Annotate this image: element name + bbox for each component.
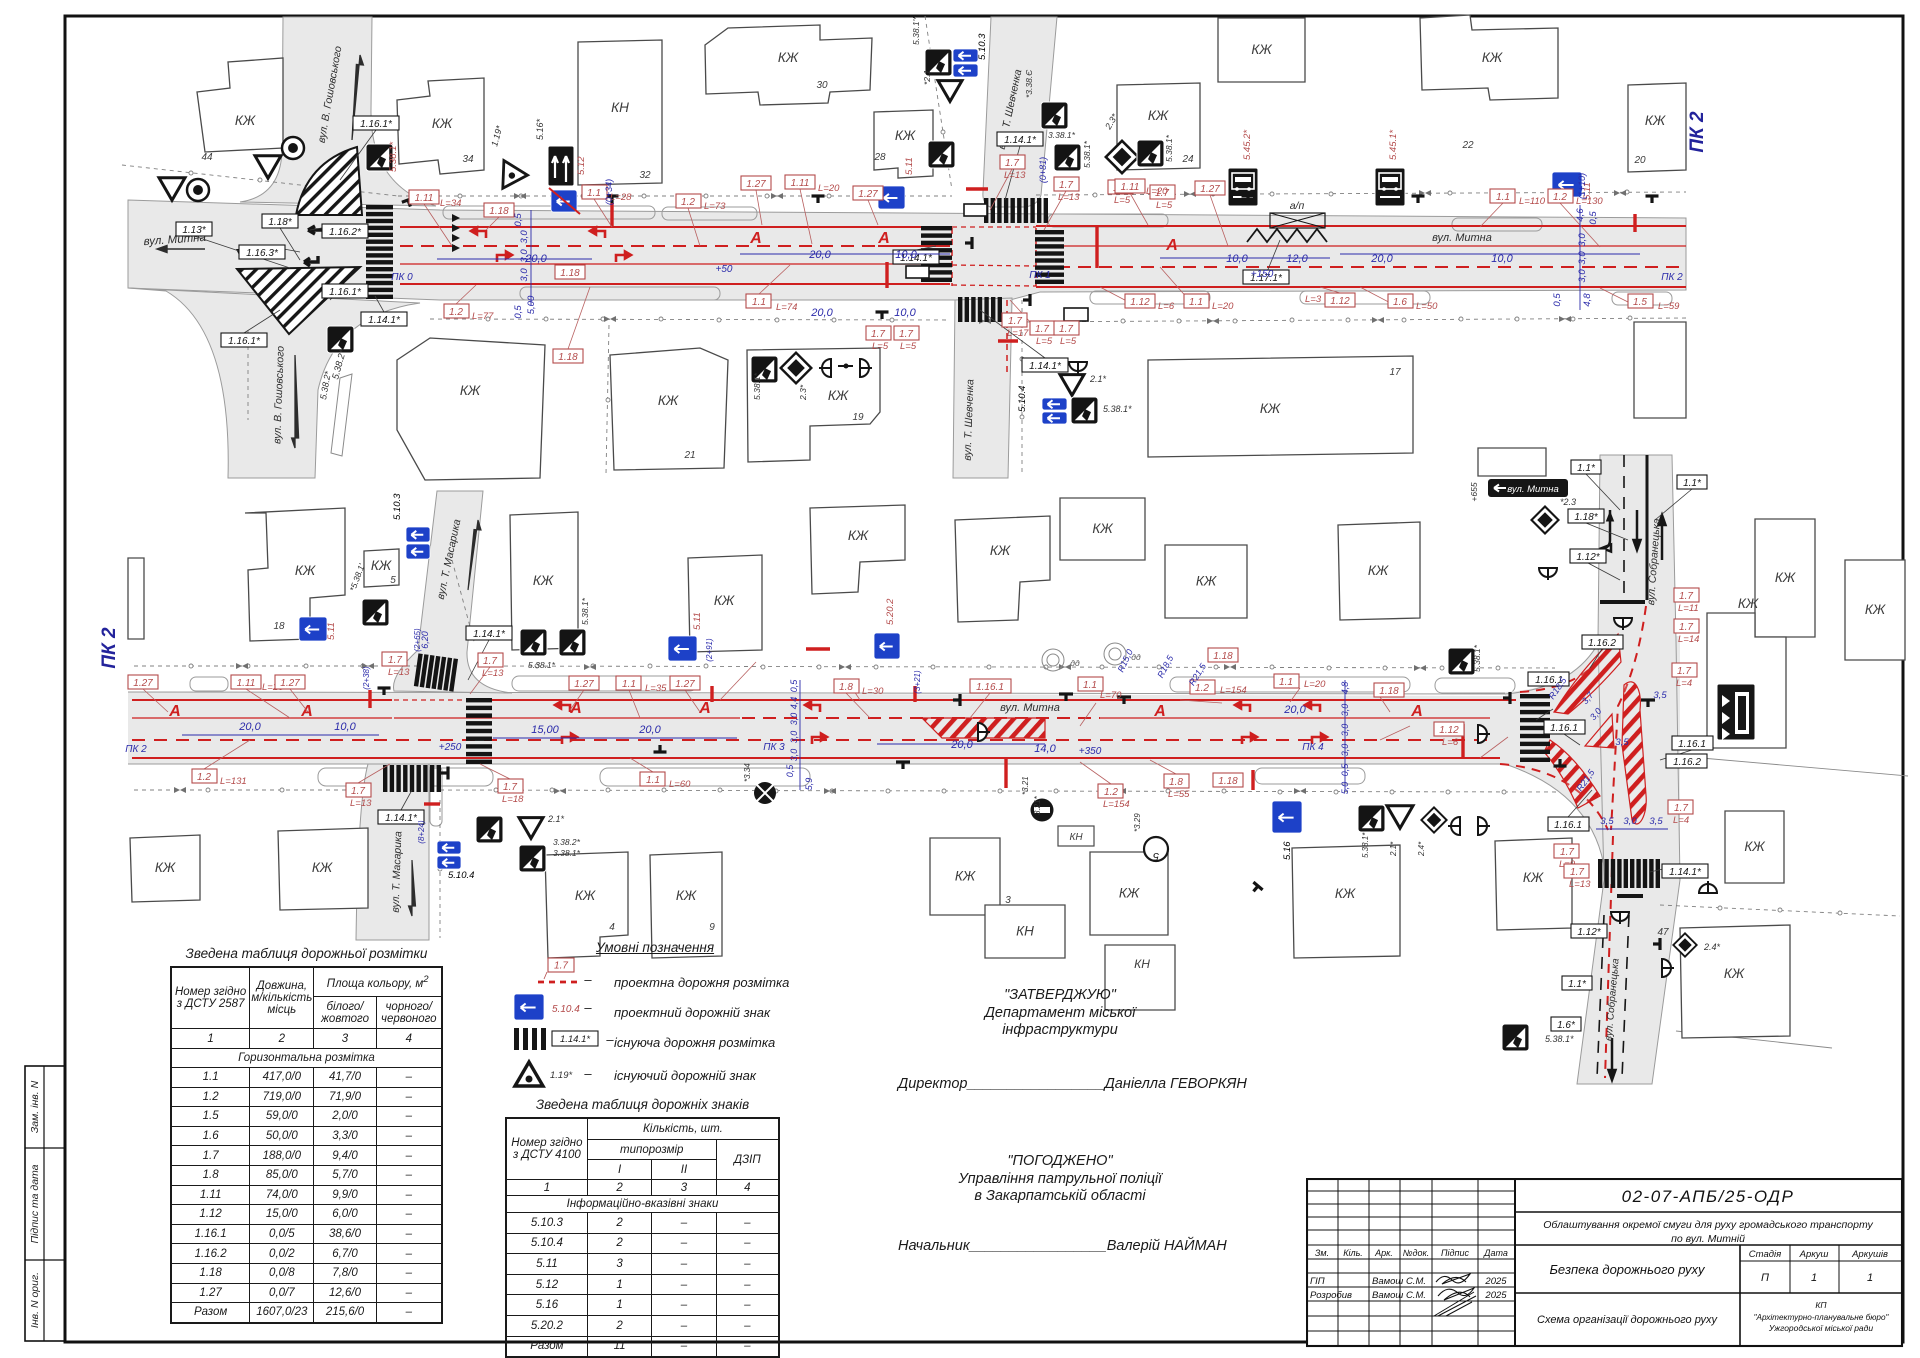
svg-text:1.18: 1.18 (1379, 686, 1399, 697)
svg-text:КЖ: КЖ (955, 869, 977, 884)
svg-text:КЖ: КЖ (1092, 521, 1114, 536)
svg-text:1.7: 1.7 (899, 329, 913, 340)
svg-text:КЖ: КЖ (658, 393, 680, 408)
svg-text:ПК 2: ПК 2 (99, 627, 120, 669)
svg-text:5.38.1*: 5.38.1* (580, 597, 590, 625)
svg-text:Ужгородської міської ради: Ужгородської міської ради (1768, 1323, 1873, 1333)
svg-text:(2+91): (2+91) (705, 638, 714, 662)
svg-text:L=154: L=154 (1220, 685, 1247, 696)
svg-text:Аркуш: Аркуш (1799, 1249, 1829, 1260)
svg-text:1.14.1*: 1.14.1* (473, 629, 506, 640)
svg-text:1.7: 1.7 (1005, 158, 1019, 169)
svg-text:5.10.3: 5.10.3 (392, 493, 403, 520)
svg-text:Схема організації дорожнього р: Схема організації дорожнього руху (1537, 1314, 1718, 1326)
svg-text:1.27: 1.27 (280, 678, 300, 689)
svg-text:44: 44 (201, 152, 213, 163)
svg-text:0,5: 0,5 (1588, 211, 1599, 225)
svg-text:вул. Митна: вул. Митна (1000, 702, 1060, 714)
svg-text:47: 47 (1657, 927, 1669, 938)
svg-text:10,0: 10,0 (894, 307, 916, 319)
svg-text:4,6: 4,6 (1575, 208, 1586, 222)
svg-text:L=3: L=3 (1305, 294, 1322, 305)
svg-text:Інв. N ориг.: Інв. N ориг. (29, 1272, 41, 1328)
svg-text:5.11: 5.11 (904, 157, 915, 175)
svg-text:КЖ: КЖ (432, 116, 454, 131)
svg-text:КЖ: КЖ (1645, 113, 1667, 128)
svg-text:Кіль.: Кіль. (1343, 1248, 1363, 1258)
svg-text:1.7: 1.7 (1679, 622, 1693, 633)
svg-text:дд: дд (1070, 658, 1080, 668)
svg-text:5.11: 5.11 (326, 622, 337, 640)
svg-text:17: 17 (1389, 367, 1401, 378)
svg-text:1.18*: 1.18* (1574, 512, 1598, 523)
svg-text:5.16*: 5.16* (535, 118, 545, 140)
svg-text:*2.1: *2.1 (922, 70, 932, 85)
svg-text:1.7: 1.7 (1035, 324, 1049, 335)
svg-text:1.12*: 1.12* (1576, 552, 1600, 563)
svg-text:+150: +150 (1251, 269, 1274, 280)
svg-text:22: 22 (1461, 140, 1474, 151)
svg-text:1.27: 1.27 (574, 679, 594, 690)
svg-text:L=4: L=4 (1673, 815, 1689, 826)
svg-text:(0+34): (0+34) (604, 179, 614, 205)
svg-text:5.11: 5.11 (692, 612, 703, 630)
svg-text:1.2: 1.2 (197, 772, 211, 783)
svg-text:Арк.: Арк. (1374, 1248, 1393, 1258)
svg-text:L=5: L=5 (1036, 336, 1053, 347)
svg-text:3,0: 3,0 (1577, 269, 1588, 283)
svg-text:ПК 0: ПК 0 (391, 272, 413, 283)
svg-text:1.14.1*: 1.14.1* (560, 1034, 590, 1045)
svg-text:*2.3: *2.3 (1560, 497, 1576, 507)
svg-text:(3+21): (3+21) (913, 670, 922, 694)
svg-text:(1+10): (1+10) (1577, 173, 1587, 199)
svg-text:1.16.1: 1.16.1 (1550, 723, 1578, 734)
svg-text:0,5: 0,5 (785, 764, 795, 778)
svg-text:1: 1 (1867, 1272, 1873, 1284)
svg-text:(2+65): (2+65) (413, 628, 422, 652)
svg-text:КЖ: КЖ (235, 113, 257, 128)
svg-text:Аркушів: Аркушів (1851, 1249, 1888, 1260)
svg-text:ГІП: ГІП (1310, 1276, 1325, 1287)
svg-text:Стадія: Стадія (1749, 1249, 1781, 1260)
svg-text:КЖ: КЖ (1196, 574, 1218, 589)
svg-text:по вул. Митній: по вул. Митній (1671, 1233, 1745, 1245)
svg-text:КЖ: КЖ (575, 888, 597, 903)
svg-text:L=60: L=60 (669, 779, 691, 790)
svg-text:1.18: 1.18 (489, 206, 509, 217)
svg-text:–: – (583, 1066, 592, 1081)
svg-text:1.11: 1.11 (791, 178, 810, 189)
svg-text:L=13: L=13 (388, 667, 410, 678)
svg-text:L=6: L=6 (1158, 301, 1175, 312)
svg-text:3,0: 3,0 (1577, 251, 1588, 265)
svg-text:3,0: 3,0 (789, 731, 799, 744)
svg-text:18: 18 (273, 621, 285, 632)
svg-text:КЖ: КЖ (1482, 50, 1504, 65)
svg-text:КЖ: КЖ (848, 528, 870, 543)
svg-text:3,5: 3,5 (1649, 816, 1663, 827)
svg-text:34: 34 (462, 154, 474, 165)
svg-text:1.14.1*: 1.14.1* (368, 315, 401, 326)
svg-text:L=13: L=13 (1058, 192, 1080, 203)
svg-text:5.10.4: 5.10.4 (552, 1004, 580, 1015)
svg-text:1.18: 1.18 (558, 352, 578, 363)
svg-text:3,5: 3,5 (1600, 816, 1614, 827)
svg-text:L=34: L=34 (440, 198, 461, 209)
svg-text:5.16: 5.16 (1282, 841, 1293, 860)
svg-text:1.16.3*: 1.16.3* (246, 248, 279, 259)
svg-text:L=17: L=17 (1007, 328, 1029, 339)
svg-text:1.18*: 1.18* (268, 217, 292, 228)
svg-text:+250: +250 (439, 742, 462, 753)
svg-text:5,9: 5,9 (804, 778, 814, 791)
svg-text:5.38.1*: 5.38.1* (1164, 134, 1174, 162)
svg-text:КЖ: КЖ (778, 50, 800, 65)
svg-text:вул. Митна: вул. Митна (1507, 484, 1559, 495)
svg-text:1.7: 1.7 (483, 656, 497, 667)
svg-text:3,0: 3,0 (789, 713, 799, 726)
svg-text:L=14: L=14 (1678, 634, 1699, 645)
svg-text:5.38.1*: 5.38.1* (1103, 404, 1132, 414)
svg-text:КЖ: КЖ (714, 593, 736, 608)
svg-text:А: А (698, 700, 711, 717)
svg-text:1.19*: 1.19* (550, 1070, 572, 1081)
svg-text:3,0: 3,0 (1577, 233, 1588, 247)
svg-text:+50: +50 (716, 264, 733, 275)
svg-text:1.14.1*: 1.14.1* (385, 813, 418, 824)
svg-text:1.11: 1.11 (237, 678, 256, 689)
svg-text:3,0: 3,0 (519, 249, 530, 263)
svg-text:1.7: 1.7 (1059, 324, 1073, 335)
svg-text:А: А (877, 230, 890, 247)
svg-text:12,0: 12,0 (1286, 253, 1308, 265)
svg-text:1.12: 1.12 (1439, 725, 1459, 736)
svg-text:Підпис та дата: Підпис та дата (29, 1164, 41, 1243)
svg-text:0,5: 0,5 (1552, 293, 1563, 307)
svg-text:1.14.1*: 1.14.1* (1004, 135, 1037, 146)
svg-text:5.38.1*: 5.38.1* (752, 372, 762, 400)
svg-text:20,0: 20,0 (950, 739, 973, 751)
svg-text:1.7: 1.7 (554, 961, 568, 972)
svg-text:1.16.2*: 1.16.2* (329, 227, 362, 238)
svg-text:3.38.1*: 3.38.1* (553, 848, 581, 858)
svg-text:4,4: 4,4 (789, 697, 799, 710)
svg-text:3,0: 3,0 (1623, 816, 1637, 827)
svg-text:3.38.2*: 3.38.2* (553, 837, 581, 847)
svg-text:+350: +350 (1079, 746, 1102, 757)
svg-text:L=20: L=20 (1212, 301, 1234, 312)
svg-text:0,5: 0,5 (513, 305, 524, 319)
svg-text:1.18: 1.18 (1213, 651, 1233, 662)
svg-text:20,0: 20,0 (810, 307, 833, 319)
svg-text:L=30: L=30 (862, 686, 884, 697)
svg-text:L=5: L=5 (872, 341, 889, 352)
svg-text:2025: 2025 (1484, 1276, 1507, 1287)
svg-text:1.16.1*: 1.16.1* (329, 287, 362, 298)
svg-text:1.7: 1.7 (1677, 666, 1691, 677)
svg-text:21: 21 (683, 450, 695, 461)
svg-text:5: 5 (390, 575, 396, 586)
svg-text:1.16.1*: 1.16.1* (360, 119, 393, 130)
svg-text:4: 4 (609, 922, 615, 933)
svg-text:L=4: L=4 (1676, 678, 1692, 689)
svg-text:КЖ: КЖ (1251, 42, 1273, 57)
svg-text:L=77: L=77 (472, 311, 494, 322)
svg-text:5.12: 5.12 (576, 156, 587, 175)
svg-text:1.1*: 1.1* (1568, 979, 1587, 990)
svg-text:1.7: 1.7 (1570, 867, 1584, 878)
svg-text:1.1: 1.1 (646, 775, 660, 786)
svg-text:20: 20 (1633, 155, 1646, 166)
svg-text:2.1*: 2.1* (1089, 374, 1107, 384)
svg-text:1.7: 1.7 (1674, 803, 1688, 814)
svg-text:1.12: 1.12 (1330, 296, 1350, 307)
svg-text:L=59: L=59 (1658, 301, 1680, 312)
svg-text:ПК 4: ПК 4 (1302, 742, 1324, 753)
svg-text:1.19*: 1.19* (489, 124, 504, 147)
svg-text:Безпека дорожнього руху: Безпека дорожнього руху (1549, 1262, 1706, 1277)
svg-text:1.2: 1.2 (449, 307, 463, 318)
svg-text:20,0: 20,0 (238, 721, 261, 733)
svg-text:1.7: 1.7 (1560, 847, 1574, 858)
svg-text:(2+38): (2+38) (362, 666, 371, 690)
svg-text:А: А (1410, 703, 1423, 720)
svg-text:КЖ: КЖ (828, 388, 850, 403)
svg-text:10,0: 10,0 (1491, 253, 1513, 265)
svg-text:а/п: а/п (1290, 200, 1305, 212)
svg-text:А: А (749, 230, 762, 247)
svg-text:1.16.1: 1.16.1 (976, 682, 1004, 693)
svg-text:1.27: 1.27 (746, 179, 766, 190)
svg-text:5.38.1*: 5.38.1* (528, 660, 556, 670)
svg-text:1.12: 1.12 (1130, 297, 1150, 308)
svg-text:L=55: L=55 (1168, 789, 1190, 800)
svg-text:КЖ: КЖ (295, 563, 317, 578)
svg-text:–: – (583, 1000, 592, 1015)
svg-text:10,0: 10,0 (334, 721, 356, 733)
svg-text:№док.: №док. (1403, 1248, 1429, 1258)
svg-text:КЖ: КЖ (1335, 886, 1357, 901)
svg-text:L=5: L=5 (1156, 200, 1173, 211)
svg-text:1.16.1: 1.16.1 (1554, 820, 1582, 831)
svg-text:L=5: L=5 (1114, 195, 1131, 206)
svg-text:1.8: 1.8 (1169, 777, 1183, 788)
svg-text:2.4*: 2.4* (1703, 942, 1721, 952)
svg-text:Вамош С.М.: Вамош С.М. (1372, 1276, 1426, 1287)
svg-text:24: 24 (1181, 154, 1194, 165)
svg-text:*3.34: *3.34 (743, 763, 752, 782)
svg-text:КН: КН (611, 100, 629, 115)
svg-text:КЖ: КЖ (1148, 108, 1170, 123)
svg-text:L=20: L=20 (818, 183, 840, 194)
svg-text:5.38.1*: 5.38.1* (1361, 832, 1370, 858)
svg-text:П: П (1761, 1272, 1769, 1284)
svg-text:2025: 2025 (1484, 1290, 1507, 1301)
svg-text:L=74: L=74 (776, 302, 797, 313)
svg-text:5.38.1*: 5.38.1* (1545, 1034, 1574, 1044)
svg-text:1.1*: 1.1* (1577, 463, 1596, 474)
svg-text:1.1: 1.1 (1083, 680, 1097, 691)
svg-text:1.1: 1.1 (1189, 297, 1203, 308)
svg-text:1.27: 1.27 (858, 189, 878, 200)
svg-text:1.7: 1.7 (871, 329, 885, 340)
svg-text:32: 32 (639, 170, 651, 181)
svg-text:02-07-АПБ/25-ОДР: 02-07-АПБ/25-ОДР (1622, 1187, 1795, 1206)
svg-text:L=13: L=13 (482, 668, 504, 679)
svg-text:3,5: 3,5 (1615, 737, 1629, 748)
svg-text:КЖ: КЖ (371, 558, 393, 573)
svg-text:3,5: 3,5 (1653, 690, 1667, 701)
svg-text:L=50: L=50 (1416, 301, 1438, 312)
svg-text:L=131: L=131 (220, 776, 247, 787)
svg-text:1: 1 (1811, 1272, 1817, 1284)
svg-text:КН: КН (1016, 924, 1034, 939)
svg-text:Розробив: Розробив (1310, 1290, 1352, 1301)
svg-text:9: 9 (709, 922, 715, 933)
svg-text:2.3*: 2.3* (798, 384, 808, 401)
svg-text:L=11: L=11 (1678, 603, 1699, 614)
svg-text:1.7: 1.7 (351, 786, 365, 797)
svg-text:Дата: Дата (1483, 1248, 1508, 1258)
svg-text:1.7: 1.7 (503, 782, 517, 793)
svg-text:15,00: 15,00 (531, 724, 559, 736)
svg-text:5.10.3: 5.10.3 (977, 33, 988, 60)
svg-text:КЖ: КЖ (1119, 886, 1141, 901)
svg-text:L=18: L=18 (502, 794, 524, 805)
svg-text:КЖ: КЖ (895, 128, 917, 143)
svg-text:1.27: 1.27 (675, 679, 695, 690)
svg-text:вул. Митна: вул. Митна (1432, 232, 1492, 244)
svg-text:0,5: 0,5 (513, 213, 524, 227)
svg-text:КЖ: КЖ (1523, 870, 1545, 885)
svg-text:КЖ: КЖ (1775, 570, 1797, 585)
svg-text:L=20: L=20 (1304, 679, 1326, 690)
svg-text:Підпис: Підпис (1441, 1248, 1469, 1258)
svg-text:1.1: 1.1 (622, 679, 636, 690)
svg-text:КЖ: КЖ (1724, 966, 1746, 981)
svg-text:5.38.1*: 5.38.1* (388, 142, 399, 172)
svg-text:5.10.4: 5.10.4 (1017, 386, 1028, 412)
svg-text:КЖ: КЖ (676, 888, 698, 903)
svg-text:19: 19 (852, 412, 864, 423)
svg-text:1.27: 1.27 (133, 678, 153, 689)
svg-text:3,0: 3,0 (519, 268, 530, 282)
svg-text:Облаштування окремої смуги для: Облаштування окремої смуги для руху гром… (1543, 1219, 1873, 1231)
svg-text:L=13: L=13 (350, 798, 372, 809)
svg-text:10,0: 10,0 (895, 249, 917, 261)
svg-text:1.2: 1.2 (681, 197, 695, 208)
svg-text:L=35: L=35 (645, 683, 667, 694)
svg-text:5.38.1*: 5.38.1* (1472, 644, 1482, 672)
svg-text:30: 30 (816, 80, 828, 91)
svg-text:1.11: 1.11 (415, 193, 434, 204)
svg-text:*3.21: *3.21 (1021, 776, 1030, 795)
svg-text:*3.38.Є: *3.38.Є (1024, 69, 1034, 98)
svg-text:Зм.: Зм. (1315, 1248, 1329, 1258)
svg-text:1.13*: 1.13* (182, 225, 206, 236)
svg-text:1.2: 1.2 (1104, 787, 1118, 798)
svg-text:ПК 1: ПК 1 (1029, 270, 1050, 281)
svg-text:1.16.2: 1.16.2 (1673, 757, 1701, 768)
svg-text:*3.29: *3.29 (1133, 813, 1142, 832)
svg-text:5.38.1*: 5.38.1* (1082, 140, 1092, 168)
svg-text:28: 28 (873, 152, 886, 163)
svg-text:КЖ: КЖ (1368, 563, 1390, 578)
svg-text:3,0: 3,0 (519, 230, 530, 244)
svg-text:20,0: 20,0 (808, 249, 831, 261)
svg-text:5.20.2: 5.20.2 (885, 598, 896, 625)
svg-text:3.21*: 3.21* (1033, 795, 1042, 815)
svg-text:1.7: 1.7 (1679, 591, 1693, 602)
svg-text:20,0: 20,0 (638, 724, 661, 736)
svg-text:–: – (583, 972, 592, 987)
svg-text:L=70: L=70 (1100, 690, 1122, 701)
svg-text:L=110: L=110 (1519, 196, 1546, 207)
svg-text:КН: КН (1134, 957, 1150, 971)
svg-text:(8+24): (8+24) (417, 820, 426, 844)
svg-text:1.8: 1.8 (839, 682, 853, 693)
svg-text:1.11: 1.11 (1121, 182, 1140, 193)
svg-text:КН: КН (1069, 832, 1083, 843)
svg-text:1.1: 1.1 (587, 188, 601, 199)
svg-text:5.38.1'*: 5.38.1'* (911, 16, 921, 45)
svg-text:L=5: L=5 (1060, 336, 1077, 347)
svg-text:L=6: L=6 (1442, 737, 1459, 748)
svg-text:КЖ: КЖ (1260, 401, 1282, 416)
svg-text:2.1*: 2.1* (1389, 841, 1398, 857)
svg-text:1.27: 1.27 (1200, 184, 1220, 195)
svg-text:2.1*: 2.1* (547, 814, 565, 824)
svg-text:1.6*: 1.6* (1557, 1020, 1576, 1031)
svg-text:5.45.1*: 5.45.1* (1388, 130, 1399, 160)
svg-text:ПК 2: ПК 2 (1661, 272, 1683, 283)
svg-text:1.16.1*: 1.16.1* (228, 336, 261, 347)
svg-text:ПК 3: ПК 3 (763, 742, 785, 753)
svg-text:КЖ: КЖ (533, 573, 555, 588)
svg-text:1.7: 1.7 (388, 655, 402, 666)
svg-text:1.12*: 1.12* (1577, 927, 1601, 938)
svg-text:1.1*: 1.1* (1683, 478, 1702, 489)
svg-text:КЖ: КЖ (312, 860, 334, 875)
svg-text:1.1: 1.1 (752, 297, 766, 308)
svg-text:(0+81): (0+81) (1038, 157, 1048, 183)
svg-text:0,5: 0,5 (789, 679, 799, 693)
svg-text:1.7: 1.7 (1008, 316, 1022, 327)
svg-text:1.7: 1.7 (1059, 180, 1073, 191)
svg-text:L=154: L=154 (1103, 799, 1130, 810)
svg-text:1.1: 1.1 (1279, 677, 1293, 688)
svg-text:3: 3 (1005, 895, 1011, 906)
svg-text:14,0: 14,0 (1034, 743, 1056, 755)
svg-text:1.2: 1.2 (1195, 683, 1209, 694)
svg-text:5.10.4: 5.10.4 (448, 870, 474, 881)
svg-text:А: А (300, 703, 313, 720)
svg-text:10,0: 10,0 (1226, 253, 1248, 265)
svg-text:3,0: 3,0 (789, 749, 799, 762)
svg-text:1.6: 1.6 (1393, 297, 1407, 308)
svg-text:3.38.1*: 3.38.1* (1048, 130, 1076, 140)
svg-text:20,0: 20,0 (1283, 704, 1306, 716)
svg-text:КЖ: КЖ (155, 860, 177, 875)
svg-text:5,00: 5,00 (526, 295, 537, 314)
svg-text:5.45.2*: 5.45.2* (1242, 130, 1253, 160)
svg-text:2.4*: 2.4* (1417, 841, 1426, 857)
svg-text:КЖ: КЖ (1744, 839, 1766, 854)
svg-text:Зам. інв. N: Зам. інв. N (29, 1080, 41, 1133)
svg-text:1.16.2: 1.16.2 (1588, 638, 1616, 649)
svg-text:1.18: 1.18 (1218, 776, 1238, 787)
